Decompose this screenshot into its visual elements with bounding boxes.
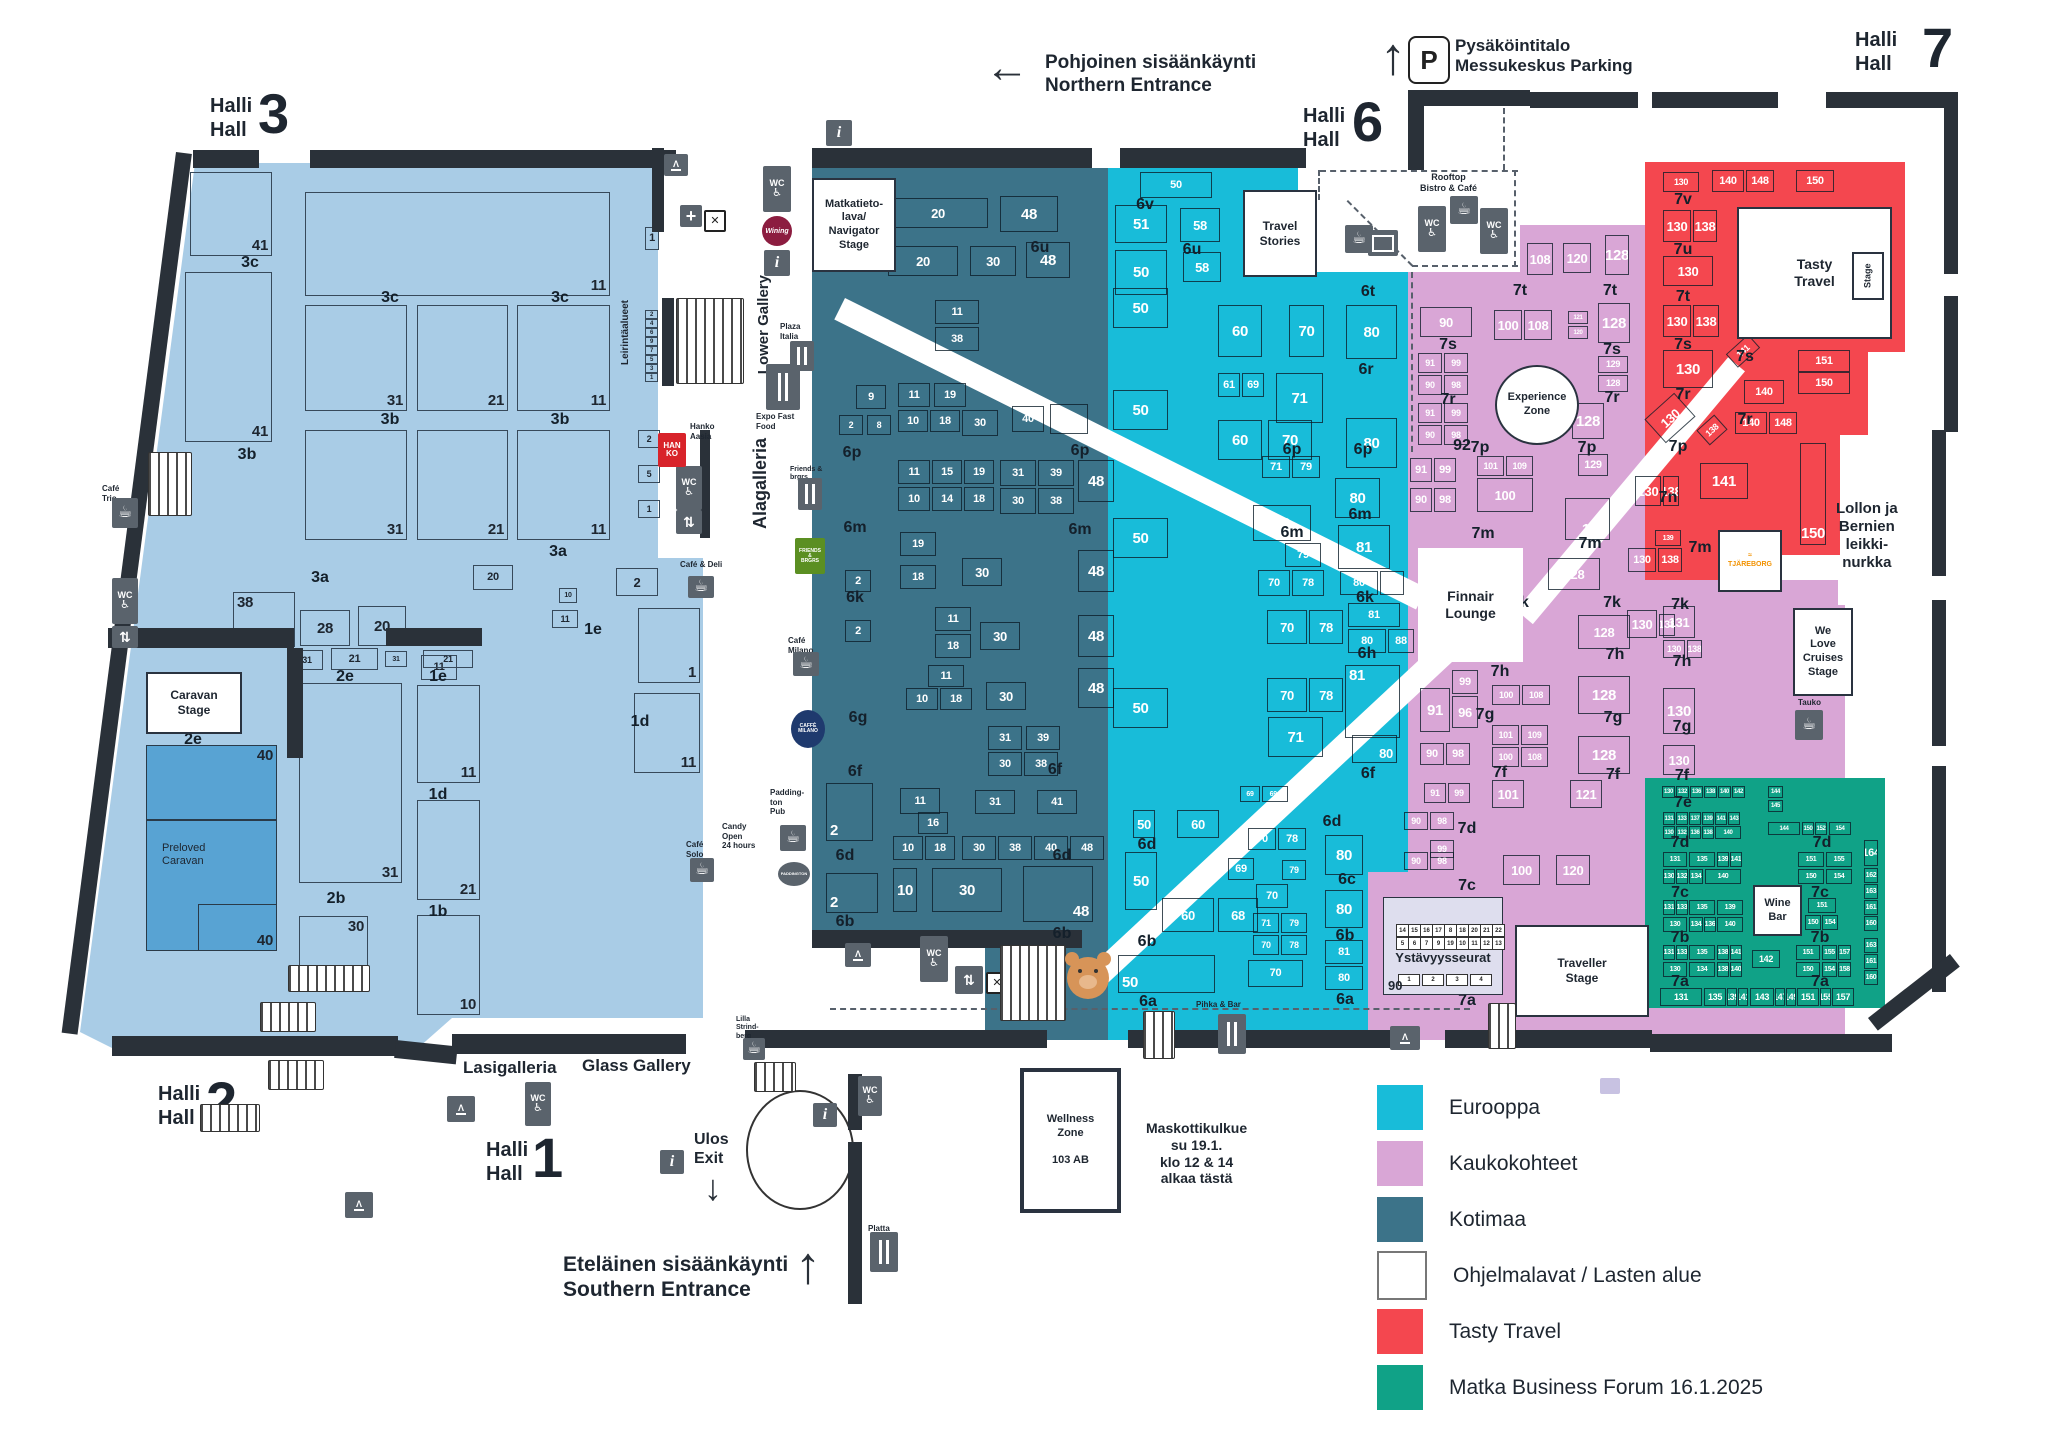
- wall: [1944, 296, 1958, 432]
- row-label-7h: 7h: [1606, 646, 1625, 664]
- booth-ka-101: 101: [1477, 456, 1504, 476]
- booth-eu-80: 80: [1325, 966, 1363, 990]
- row-label-3b: 3b: [238, 446, 257, 464]
- bear-mascot-icon: [1067, 957, 1109, 999]
- lasigalleria-label: Lasigalleria: [463, 1058, 557, 1078]
- booth-ka-100: 100: [1477, 478, 1533, 512]
- booth-gr-142: 142: [1752, 950, 1780, 968]
- booth-eu-60: 60: [1218, 420, 1262, 460]
- booth-kt-10: 10: [893, 868, 917, 912]
- row-label-3c: 3c: [241, 254, 259, 272]
- stairs-icon: [148, 452, 192, 516]
- booth-gr-140: 140: [1717, 917, 1743, 932]
- exit-arrow-icon: ↓: [700, 1166, 726, 1210]
- lift-icon: ⇅: [676, 510, 702, 534]
- booth-eu-60: 60: [1177, 810, 1219, 838]
- booth-eu-81: 81: [1338, 525, 1390, 569]
- booth-ka-120: 120: [1556, 855, 1590, 885]
- row-label-6f: 6f: [1048, 761, 1062, 779]
- booth-gr-144: 144: [1768, 822, 1800, 835]
- booth-pl-40: 40: [146, 745, 277, 820]
- booth-h3-31: 31: [305, 430, 407, 540]
- coat-check-icon: Λ: [664, 154, 688, 176]
- row-label-7b: 7b: [1811, 929, 1830, 947]
- booth-gr-139: 139: [1727, 988, 1737, 1006]
- row-label-6p: 6p: [1283, 441, 1302, 459]
- dashed-boundary: [1320, 170, 1518, 172]
- booth-ka-129: 129: [1578, 454, 1608, 476]
- row-label-7p: 7p: [1578, 439, 1597, 457]
- stairs-icon: [1000, 945, 1066, 1021]
- legend-swatch: [1377, 1197, 1423, 1242]
- candy-label: Candy Open 24 hours: [722, 822, 755, 851]
- ystav-booth-4: 4: [1470, 974, 1492, 986]
- booth-gr-138: 138: [1717, 962, 1729, 977]
- hall3-label: Halli Hall: [210, 94, 252, 142]
- stairs-icon: [268, 1060, 324, 1090]
- cafe-solo-label: Café Solo: [686, 840, 703, 859]
- wc-icon: WC♿: [112, 578, 138, 624]
- plaza-italia-label: Plaza Italia: [780, 322, 800, 341]
- booth-kt-38: 38: [1038, 488, 1074, 514]
- row-label-6g: 6g: [849, 709, 868, 727]
- row-label-6c: 6c: [1338, 871, 1356, 889]
- booth-ka-130: 130: [1627, 610, 1657, 638]
- booth-ka-98: 98: [1446, 743, 1470, 765]
- row-label-7d: 7d: [1458, 820, 1477, 838]
- ystavyysseurat-area: Ystävyysseurat14151617818202122567919101…: [1383, 897, 1503, 995]
- booth-gr-154: 154: [1826, 869, 1852, 884]
- booth-h3-11: 11: [517, 305, 610, 411]
- info-icon: i: [826, 120, 852, 146]
- booth-kt-2: 2: [839, 415, 863, 435]
- booth-kt-48: 48: [1050, 404, 1088, 434]
- booth-re-150: 150: [1798, 372, 1850, 394]
- wall: [452, 1034, 686, 1054]
- info-icon: i: [660, 1150, 684, 1174]
- booth-kt-48: 48: [1078, 615, 1114, 657]
- booth-gr-139: 139: [1702, 812, 1714, 825]
- legend-swatch: [1377, 1309, 1423, 1354]
- booth-ka-100: 100: [1494, 310, 1522, 340]
- booth-gr-138: 138: [1717, 945, 1729, 960]
- booth-re-140: 140: [1744, 380, 1784, 404]
- stairs-icon: [676, 298, 744, 384]
- exit-label: Ulos Exit: [694, 1130, 729, 1168]
- booth-eu-58: 58: [1180, 208, 1220, 242]
- booth-eu-80: 80: [1346, 305, 1397, 359]
- booth-ka-90: 90: [1404, 812, 1428, 830]
- row-label-2b: 2b: [327, 890, 346, 908]
- booth-eu-78: 78: [1309, 610, 1343, 644]
- booth-gr-131: 131: [1663, 945, 1675, 960]
- ystav-booth-22: 22: [1492, 924, 1505, 937]
- booth-kt-48: 48: [1070, 836, 1104, 860]
- legend-swatch: [1377, 1251, 1427, 1300]
- floor-plan-map: EurooppaKaukokohteetKotimaaOhjelmalavat …: [0, 0, 2066, 1446]
- cafe-icon: ☕: [793, 652, 819, 676]
- wall: [1408, 90, 1424, 170]
- wine-bar: Wine Bar: [1753, 885, 1802, 936]
- booth-kt-48: 48: [1023, 866, 1093, 922]
- booth-re-138: 138: [1693, 305, 1719, 337]
- wall: [394, 1040, 458, 1064]
- legend-swatch: [1377, 1365, 1423, 1410]
- wc-icon: WC♿: [920, 936, 948, 982]
- booth-gr-133: 133: [1676, 812, 1688, 825]
- booth-ka-100: 100: [1492, 685, 1520, 705]
- booth-ka-99: 99: [1444, 353, 1468, 373]
- booth-eu-50: 50: [1113, 288, 1168, 328]
- booth-eu-71: 71: [1268, 717, 1323, 757]
- legend-label: Kaukokohteet: [1449, 1152, 1577, 1176]
- booth-h3-31: 31: [305, 305, 407, 411]
- restaurant-icon: [870, 1232, 898, 1272]
- booth-ka-128: 128: [1565, 498, 1610, 540]
- cafe-icon: ☕: [1450, 196, 1478, 224]
- restaurant-icon: [798, 478, 822, 510]
- booth-h3-41: 41: [190, 172, 272, 256]
- row-label-6b: 6b: [1336, 927, 1355, 945]
- booth-kt-9: 9: [856, 385, 886, 409]
- booth-gr-136: 136: [1704, 917, 1716, 932]
- booth-gr-138: 138: [1702, 826, 1714, 839]
- booth-gr-137: 137: [1689, 812, 1701, 825]
- booth-gr-132: 132: [1676, 869, 1688, 884]
- booth-gr-135: 135: [1689, 945, 1715, 960]
- booth-kt-30: 30: [986, 682, 1026, 710]
- booth-gr-149: 149: [1786, 988, 1796, 1006]
- wall: [1932, 430, 1946, 576]
- row-label-6d: 6d: [836, 847, 855, 865]
- cafe-deli-label: Café & Deli: [680, 560, 722, 570]
- booth-ka-138: 138: [1658, 548, 1682, 572]
- booth-kt-31: 31: [1000, 460, 1036, 486]
- row-label-7s: 7s: [1603, 341, 1621, 359]
- parking-label: Pysäköintitalo Messukeskus Parking: [1455, 36, 1633, 77]
- dashed-boundary: [1514, 170, 1516, 267]
- lift-icon: ⇅: [112, 626, 138, 648]
- booth-h3-30: 30: [299, 916, 368, 966]
- booth-h3-21: 21: [417, 800, 480, 900]
- booth-gr-140: 140: [1705, 869, 1741, 884]
- row-label-7c: 7c: [1458, 877, 1476, 895]
- row-label-1e: 1e: [584, 621, 602, 639]
- booth-gr-130: 130: [1663, 869, 1675, 884]
- booth-kt-31: 31: [975, 790, 1015, 814]
- booth-eu-80: 80: [1325, 835, 1363, 875]
- lower-gallery-label: Lower Gallery: [755, 275, 773, 374]
- booth-kt-11: 11: [898, 383, 930, 407]
- booth-eu-60: 60: [1162, 898, 1214, 932]
- booth-kt-2: 2: [826, 783, 873, 841]
- booth-h3-1: 1: [638, 500, 660, 518]
- north-arrow-icon: ←: [982, 48, 1032, 88]
- coat-check-icon: Λ: [345, 1192, 373, 1218]
- booth-h3-31: 31: [299, 683, 402, 883]
- booth-h3-21: 21: [417, 430, 508, 540]
- booth-gr-138: 138: [1704, 786, 1717, 798]
- wc-icon: WC♿: [1418, 206, 1446, 252]
- row-label-7h: 7h: [1673, 653, 1692, 671]
- finnair-lounge: Finnair Lounge: [1418, 548, 1523, 662]
- booth-h3-21: 21: [417, 305, 508, 411]
- row-label-7p: 7p: [1669, 438, 1688, 456]
- booth-eu-79: 79: [1281, 913, 1307, 933]
- row-label-6m: 6m: [843, 519, 866, 537]
- info-icon: i: [813, 1103, 837, 1127]
- booth-h3-2: 2: [645, 310, 658, 319]
- booth-kt-20: 20: [888, 198, 988, 228]
- booth-gr-141: 141: [1730, 852, 1742, 867]
- booth-pl-40: 40: [198, 904, 277, 951]
- booth-h3-10: 10: [417, 915, 480, 1015]
- booth-h3-21: 21: [423, 650, 473, 668]
- legend-item-0: Eurooppa: [1377, 1085, 1763, 1130]
- alagalleria-label: Alagalleria: [750, 438, 772, 529]
- booth-gr-157: 157: [1832, 988, 1854, 1006]
- hall6-number: 6: [1352, 88, 1383, 155]
- row-label-6m: 6m: [1348, 506, 1371, 524]
- booth-h3-9: 9: [645, 337, 658, 346]
- booth-h3-3: 3: [645, 364, 658, 373]
- booth-gr-164: 164: [1864, 840, 1878, 866]
- row-label-6h: 6h: [1358, 645, 1377, 663]
- dashed-boundary: [1412, 265, 1518, 267]
- booth-kt-30: 30: [962, 836, 996, 860]
- booth-h3-5: 5: [638, 465, 660, 483]
- booth-ka-99: 99: [1452, 670, 1478, 694]
- booth-gr-134: 134: [1689, 869, 1703, 884]
- row-label-6t: 6t: [1361, 283, 1375, 301]
- booth-kt-18: 18: [940, 688, 972, 710]
- booth-gr-150: 150: [1798, 869, 1824, 884]
- legend-label: Tasty Travel: [1449, 1320, 1561, 1344]
- wall: [1944, 106, 1958, 274]
- navigator-stage: Matkatieto- lava/ Navigator Stage: [812, 178, 896, 272]
- booth-gr-140: 140: [1718, 786, 1731, 798]
- booth-gr-135: 135: [1704, 988, 1726, 1006]
- legend-label: Eurooppa: [1449, 1096, 1540, 1120]
- booth-ka-109: 109: [1521, 725, 1548, 745]
- wc-icon: WC♿: [858, 1076, 882, 1116]
- booth-re-150: 150: [1796, 170, 1834, 192]
- preloved-caravan-label: Preloved Caravan: [162, 842, 205, 868]
- booth-eu-70: 70: [1248, 828, 1276, 850]
- row-label-6d: 6d: [1138, 836, 1157, 854]
- booth-ka-139: 139: [1655, 530, 1681, 546]
- row-label-3c: 3c: [381, 289, 399, 307]
- booth-re-130: 130: [1663, 350, 1713, 388]
- hall2-label: Halli Hall: [158, 1082, 200, 1130]
- booth-eu-61: 61: [1218, 373, 1240, 397]
- booth-eu-79: 79: [1282, 860, 1306, 880]
- ystav-90-label: 90: [1388, 978, 1402, 993]
- row-label-7v: 7v: [1674, 191, 1692, 209]
- letter-box-icon: ✕: [704, 210, 726, 232]
- booth-h3-11: 11: [552, 610, 578, 628]
- dashed-boundary: [1318, 170, 1320, 200]
- wall: [386, 628, 482, 646]
- row-label-6a: 6a: [1336, 991, 1354, 1009]
- hall7-label: Halli Hall: [1855, 28, 1897, 76]
- booth-gr-163: 163: [1864, 884, 1878, 899]
- booth-eu-71: 71: [1276, 373, 1323, 423]
- row-label-7g: 7g: [1476, 706, 1495, 724]
- booth-re-150: 150: [1800, 443, 1826, 545]
- booth-re-130: 130: [1663, 305, 1691, 337]
- booth-re-130: 130: [1663, 256, 1713, 286]
- wall: [812, 148, 1092, 168]
- booth-kt-11: 11: [935, 300, 979, 324]
- row-label-6d: 6d: [1323, 813, 1342, 831]
- row-label-7g: 7g: [1673, 718, 1692, 736]
- cafe-icon: ☕: [690, 858, 714, 882]
- booth-kt-18: 18: [964, 487, 994, 511]
- booth-gr-131: 131: [1663, 852, 1687, 867]
- booth-eu-68: 68: [1218, 898, 1258, 932]
- stairs-icon: [288, 965, 370, 992]
- we-love-cruises-stage: We Love Cruises Stage: [1793, 608, 1853, 696]
- row-label-7e: 7e: [1674, 794, 1692, 812]
- thin-line: [660, 53, 723, 95]
- first-aid-icon: +: [680, 205, 702, 227]
- booth-gr-154: 154: [1822, 915, 1838, 930]
- booth-kt-30: 30: [988, 752, 1022, 776]
- parking-arrow-icon: ↑: [1380, 34, 1406, 80]
- wall: [1120, 148, 1306, 168]
- legend-label: Ohjelmalavat / Lasten alue: [1453, 1264, 1702, 1288]
- booth-gr-151: 151: [1798, 852, 1824, 867]
- cafe-icon: ☕: [1795, 710, 1823, 740]
- row-label-7m: 7m: [1471, 525, 1494, 543]
- booth-eu-71: 71: [1262, 456, 1290, 478]
- ystav-booth-13: 13: [1492, 937, 1505, 950]
- revolving-door: [746, 1090, 854, 1210]
- booth-gr-130: 130: [1662, 786, 1675, 798]
- booth-eu-69: 69: [1228, 858, 1254, 880]
- cafe-icon: ☕: [112, 498, 138, 528]
- row-label-6p: 6p: [843, 444, 862, 462]
- wall: [1826, 92, 1958, 108]
- row-label-3a: 3a: [311, 569, 329, 587]
- wall: [1408, 90, 1530, 106]
- booth-kt-2: 2: [826, 873, 878, 913]
- rooftop-bistro-label: Rooftop Bistro & Café: [1420, 172, 1477, 194]
- wall: [287, 648, 303, 758]
- wall: [745, 1030, 1047, 1048]
- booth-ka-130: 130: [1628, 548, 1656, 572]
- booth-re-141: 141: [1700, 463, 1748, 499]
- booth-kt-30: 30: [932, 868, 1002, 912]
- booth-kt-8: 8: [867, 415, 891, 435]
- booth-gr-131: 131: [1663, 900, 1675, 915]
- booth-re-148: 148: [1769, 412, 1797, 434]
- row-label-6k: 6k: [1356, 589, 1374, 607]
- booth-kt-18: 18: [900, 565, 936, 589]
- booth-gr-150: 150: [1805, 915, 1821, 930]
- booth-ka-120: 120: [1563, 243, 1591, 273]
- wall: [112, 1036, 398, 1056]
- legend: EurooppaKaukokohteetKotimaaOhjelmalavat …: [1377, 1085, 1763, 1421]
- row-label-3b: 3b: [551, 411, 570, 429]
- lift-icon: ⇅: [955, 966, 983, 994]
- booth-eu-88: 88: [1388, 629, 1414, 653]
- booth-gr-155: 155: [1826, 852, 1852, 867]
- wall: [848, 1142, 862, 1304]
- booth-ka-99: 99: [1434, 458, 1456, 482]
- row-label-3c: 3c: [551, 289, 569, 307]
- booth-eu-69: 69: [1240, 786, 1260, 802]
- row-label-6m: 6m: [1068, 521, 1091, 539]
- dashed-boundary: [1503, 108, 1505, 170]
- dashed-boundary: [1411, 272, 1413, 452]
- booth-kt-40: 40: [1012, 406, 1044, 432]
- booth-ka-101: 101: [1492, 725, 1519, 745]
- row-label-6a: 6a: [1139, 993, 1157, 1011]
- booth-ka-90: 90: [1420, 307, 1472, 337]
- booth-ka-128: 128: [1548, 558, 1600, 590]
- southern-entrance-label: Eteläinen sisäänkäynti Southern Entrance: [563, 1252, 788, 1302]
- booth-eu-80: 80: [1325, 890, 1363, 928]
- booth-gr-162: 162: [1864, 868, 1878, 883]
- coat-check-icon: Λ: [447, 1096, 475, 1122]
- booth-eu-71: 71: [1253, 913, 1279, 933]
- expo-fast-food-label: Expo Fast Food: [756, 412, 794, 431]
- booth-kt-2: 2: [845, 620, 871, 642]
- info-icon: i: [764, 250, 790, 276]
- booth-kt-30: 30: [962, 410, 998, 436]
- booth-h3-6: 6: [645, 328, 658, 337]
- row-label-6d: 6d: [1053, 847, 1072, 865]
- booth-kt-18: 18: [925, 836, 955, 860]
- booth-gr-141: 141: [1730, 945, 1742, 960]
- row-label-7f: 7f: [1675, 767, 1689, 785]
- row-label-6u: 6u: [1031, 239, 1050, 257]
- booth-eu-79: 79: [1285, 543, 1321, 567]
- booth-gr-160: 160: [1864, 916, 1878, 931]
- hanko-aasia-label: Hanko Aasia: [690, 422, 714, 441]
- travel-stories-stage: Travel Stories: [1243, 190, 1317, 277]
- booth-gr-134: 134: [1689, 917, 1703, 932]
- wall: [1530, 92, 1638, 108]
- wall: [1650, 1034, 1892, 1052]
- booth-eu-70: 70: [1253, 935, 1279, 955]
- row-label-7r: 7r: [1604, 389, 1619, 407]
- row-label-6m: 6m: [1280, 524, 1303, 542]
- booth-gr-160: 160: [1864, 970, 1878, 985]
- row-label-2e: 2e: [336, 668, 354, 686]
- row-label-7n: 7n: [1659, 489, 1678, 507]
- row-label-6u: 6u: [1183, 241, 1202, 259]
- booth-gr-133: 133: [1676, 945, 1688, 960]
- booth-h3-7: 7: [645, 346, 658, 355]
- booth-eu-78: 78: [1278, 828, 1306, 850]
- row-label-7a: 7a: [1671, 973, 1689, 991]
- booth-eu-50: 50: [1113, 688, 1168, 728]
- row-label-7h: 7h: [1491, 663, 1510, 681]
- northern-entrance-label: Pohjoinen sisäänkäynti Northern Entrance: [1045, 52, 1256, 98]
- booth-gr-140: 140: [1715, 826, 1741, 839]
- legend-item-5: Matka Business Forum 16.1.2025: [1377, 1365, 1763, 1410]
- booth-kt-38: 38: [935, 327, 979, 351]
- booth-ka-101: 101: [1492, 780, 1524, 808]
- booth-re-130: 130: [1663, 210, 1691, 242]
- row-label-7r: 7r: [1675, 386, 1690, 404]
- booth-re-128: 128: [1598, 303, 1630, 343]
- booth-ka-121: 121: [1570, 780, 1602, 808]
- row-label-7b: 7b: [1671, 929, 1690, 947]
